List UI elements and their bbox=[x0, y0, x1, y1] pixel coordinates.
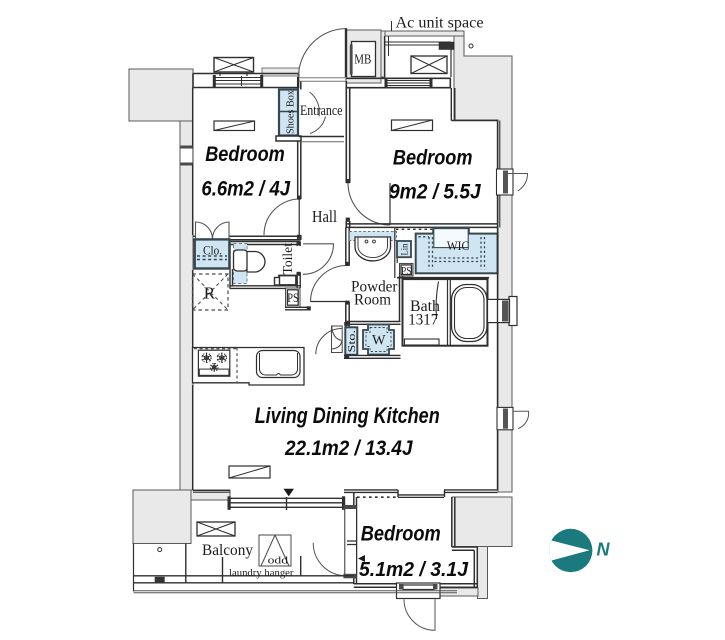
svg-text:Balcony: Balcony bbox=[202, 542, 253, 559]
svg-text:Bedroom: Bedroom bbox=[205, 143, 285, 166]
svg-text:PS: PS bbox=[287, 291, 299, 305]
svg-text:22.1m2 / 13.4J: 22.1m2 / 13.4J bbox=[284, 437, 414, 460]
svg-text:6.6m2 / 4J: 6.6m2 / 4J bbox=[201, 178, 291, 201]
svg-text:Room: Room bbox=[354, 292, 391, 309]
svg-text:Entrance: Entrance bbox=[300, 103, 343, 119]
svg-text:Bedroom: Bedroom bbox=[361, 523, 441, 546]
svg-text:Living Dining Kitchen: Living Dining Kitchen bbox=[255, 403, 440, 428]
svg-text:laundry hanger: laundry hanger bbox=[229, 567, 294, 579]
svg-text:Lin: Lin bbox=[401, 243, 411, 255]
svg-text:Ac unit space: Ac unit space bbox=[396, 15, 484, 32]
svg-text:1317: 1317 bbox=[408, 312, 438, 329]
svg-text:odd: odd bbox=[268, 555, 289, 567]
svg-text:WIC: WIC bbox=[447, 238, 470, 253]
svg-text:N: N bbox=[597, 540, 611, 560]
svg-text:R: R bbox=[204, 284, 216, 303]
svg-text:Sto.: Sto. bbox=[347, 330, 358, 353]
svg-text:PS: PS bbox=[401, 266, 412, 278]
svg-text:9m2 / 5.5J: 9m2 / 5.5J bbox=[389, 181, 482, 204]
svg-text:W: W bbox=[372, 333, 386, 349]
svg-text:Clo.: Clo. bbox=[203, 243, 222, 258]
svg-text:5.1m2 / 3.1J: 5.1m2 / 3.1J bbox=[359, 559, 469, 581]
svg-text:Bedroom: Bedroom bbox=[393, 147, 473, 170]
svg-text:MB: MB bbox=[354, 52, 371, 67]
svg-text:Shoes Box: Shoes Box bbox=[286, 89, 297, 134]
svg-text:Hall: Hall bbox=[312, 207, 337, 226]
svg-text:Toilet: Toilet bbox=[281, 243, 296, 275]
